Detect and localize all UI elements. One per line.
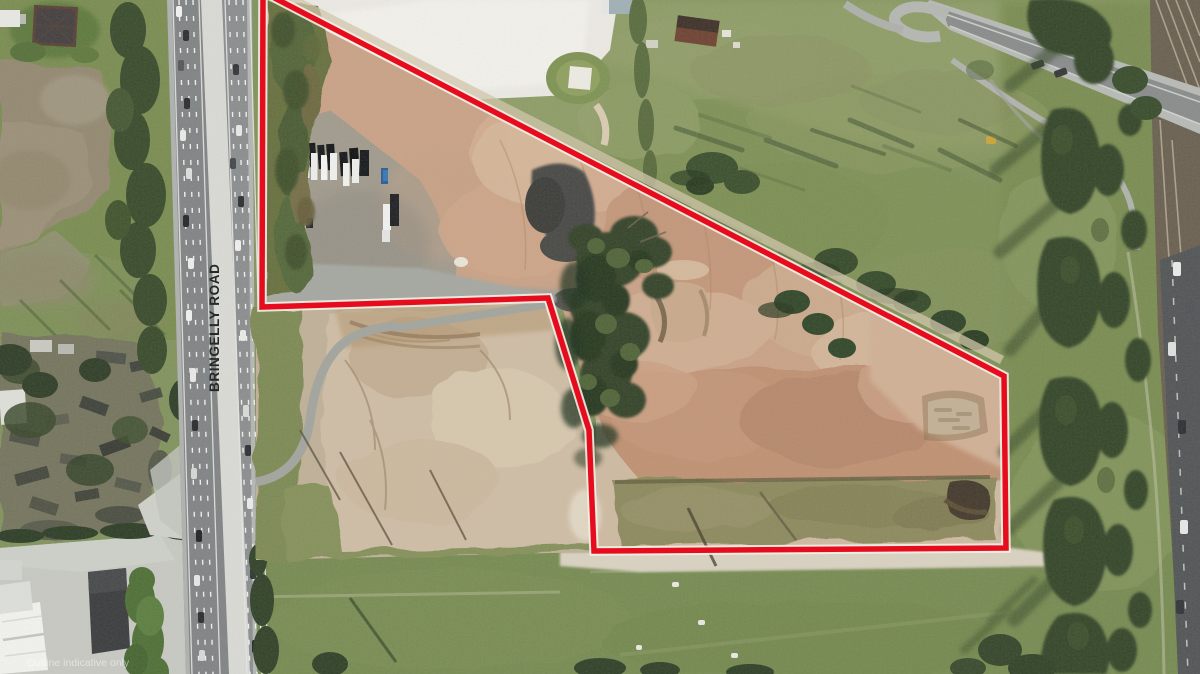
- svg-text:BRINGELLY ROAD: BRINGELLY ROAD: [207, 264, 222, 392]
- svg-text:Outline indicative only: Outline indicative only: [27, 657, 130, 669]
